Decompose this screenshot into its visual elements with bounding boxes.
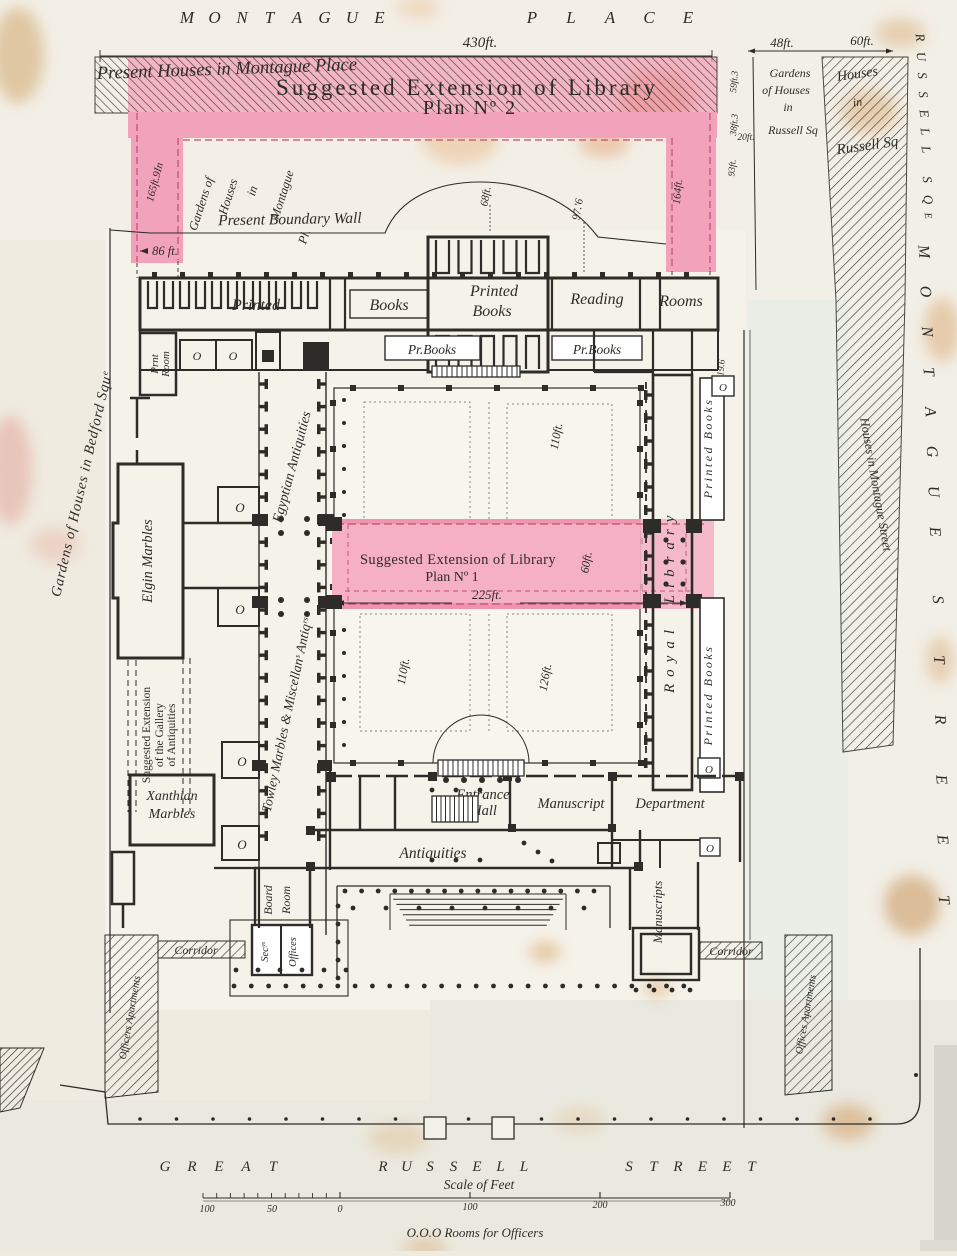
svg-text:E: E	[697, 1159, 707, 1175]
svg-text:200: 200	[593, 1200, 608, 1211]
svg-text:Russell Sq: Russell Sq	[767, 123, 818, 137]
svg-text:20ft.: 20ft.	[737, 132, 754, 143]
svg-text:E: E	[933, 833, 951, 845]
svg-text:Manuscript: Manuscript	[537, 796, 606, 812]
svg-text:M: M	[179, 8, 195, 27]
svg-text:O: O	[719, 382, 727, 394]
svg-text:S: S	[929, 595, 947, 604]
svg-text:Elgin Marbles: Elgin Marbles	[140, 519, 156, 604]
svg-text:Secʸˢ: Secʸˢ	[260, 941, 271, 961]
svg-text:48ft.: 48ft.	[770, 35, 793, 50]
svg-text:Plan Nº 1: Plan Nº 1	[425, 570, 478, 585]
svg-text:E: E	[471, 1159, 481, 1175]
svg-text:Printed Books: Printed Books	[701, 398, 715, 500]
svg-text:A: A	[604, 8, 616, 27]
svg-text:100: 100	[463, 1202, 478, 1213]
svg-text:E: E	[932, 773, 950, 785]
svg-text:O: O	[208, 8, 220, 27]
svg-text:R: R	[931, 713, 949, 725]
svg-text:A: A	[921, 405, 939, 417]
svg-text:O: O	[235, 602, 245, 617]
svg-text:60ft.: 60ft.	[850, 33, 873, 48]
svg-text:O: O	[229, 349, 238, 363]
svg-text:225ft.: 225ft.	[472, 587, 502, 602]
svg-text:Room: Room	[160, 351, 172, 378]
svg-text:Books: Books	[472, 303, 511, 320]
svg-text:164ft.: 164ft.	[671, 179, 685, 205]
svg-text:S: S	[625, 1159, 633, 1175]
svg-text:U: U	[346, 8, 360, 27]
svg-text:O.O.O Rooms for Officers: O.O.O Rooms for Officers	[407, 1225, 544, 1240]
svg-text:Library: Library	[662, 509, 678, 605]
svg-text:Corridor: Corridor	[709, 944, 753, 958]
svg-text:Printed: Printed	[469, 283, 519, 300]
svg-text:C: C	[643, 8, 655, 27]
svg-text:of Houses: of Houses	[762, 83, 810, 97]
svg-text:O: O	[235, 500, 245, 515]
svg-text:O: O	[705, 764, 713, 776]
svg-text:E: E	[922, 211, 934, 219]
svg-text:of the Gallery: of the Gallery	[154, 703, 166, 767]
svg-text:Department: Department	[634, 796, 705, 812]
svg-text:in: in	[852, 94, 863, 109]
svg-text:N: N	[235, 8, 249, 27]
svg-text:T: T	[265, 8, 276, 27]
svg-text:R: R	[186, 1159, 196, 1175]
svg-text:E: E	[682, 8, 694, 27]
svg-text:O: O	[237, 754, 247, 769]
svg-text:Books: Books	[369, 297, 408, 314]
svg-text:L: L	[519, 1159, 528, 1175]
svg-text:O: O	[237, 837, 247, 852]
svg-text:in: in	[783, 100, 792, 114]
svg-text:93ft.: 93ft.	[726, 159, 738, 177]
svg-text:Present Boundary Wall: Present Boundary Wall	[217, 210, 362, 230]
svg-text:Board: Board	[261, 884, 275, 915]
svg-text:430ft.: 430ft.	[463, 35, 498, 51]
svg-text:S: S	[426, 1159, 434, 1175]
svg-text:O: O	[916, 285, 934, 298]
svg-text:G: G	[318, 8, 330, 27]
svg-text:Pr.Books: Pr.Books	[407, 342, 456, 357]
svg-text:59ft.3: 59ft.3	[728, 70, 741, 93]
svg-text:O: O	[193, 349, 202, 363]
svg-text:Room: Room	[279, 886, 293, 915]
svg-text:A: A	[240, 1159, 251, 1175]
svg-text:G: G	[923, 445, 941, 458]
svg-text:P: P	[526, 8, 537, 27]
svg-text:Plan Nº 2: Plan Nº 2	[423, 97, 517, 119]
svg-text:Xanthian: Xanthian	[145, 789, 197, 804]
svg-text:E: E	[721, 1159, 731, 1175]
svg-text:E: E	[213, 1159, 223, 1175]
svg-text:Royal: Royal	[662, 623, 678, 694]
svg-text:R: R	[377, 1159, 387, 1175]
svg-text:E: E	[373, 8, 385, 27]
svg-text:R: R	[672, 1159, 682, 1175]
svg-text:Marbles: Marbles	[148, 807, 196, 822]
svg-text:U: U	[401, 1159, 413, 1175]
svg-text:Gardens: Gardens	[770, 66, 811, 80]
svg-text:Offices: Offices	[288, 937, 299, 967]
svg-text:S: S	[450, 1159, 458, 1175]
svg-text:G: G	[160, 1159, 171, 1175]
svg-text:O: O	[706, 843, 714, 855]
svg-text:Scale of Feet: Scale of Feet	[444, 1177, 516, 1192]
svg-text:Printed: Printed	[231, 297, 281, 314]
svg-text:E: E	[916, 108, 932, 119]
svg-text:100: 100	[200, 1204, 215, 1215]
svg-text:Suggested Extension: Suggested Extension	[141, 687, 153, 783]
svg-text:Pr.Books: Pr.Books	[572, 342, 621, 357]
svg-text:Corridor: Corridor	[174, 943, 218, 957]
svg-text:A: A	[291, 8, 303, 27]
svg-text:L: L	[565, 8, 575, 27]
svg-text:300: 300	[720, 1198, 736, 1209]
svg-text:L: L	[495, 1159, 504, 1175]
svg-text:Printed Books: Printed Books	[701, 645, 715, 747]
svg-text:R: R	[912, 32, 928, 43]
svg-text:Rooms: Rooms	[658, 293, 703, 310]
svg-text:50: 50	[267, 1204, 277, 1215]
svg-text:E: E	[926, 525, 944, 537]
svg-text:Manuscripts: Manuscripts	[651, 881, 665, 945]
svg-text:of Antiquities: of Antiquities	[166, 703, 178, 766]
svg-text:Suggested Extension of Library: Suggested Extension of Library	[360, 552, 556, 568]
svg-text:0: 0	[338, 1204, 343, 1215]
svg-text:86 ft.: 86 ft.	[152, 244, 178, 258]
svg-text:Antiquities: Antiquities	[398, 845, 466, 862]
svg-text:Reading: Reading	[569, 291, 623, 308]
